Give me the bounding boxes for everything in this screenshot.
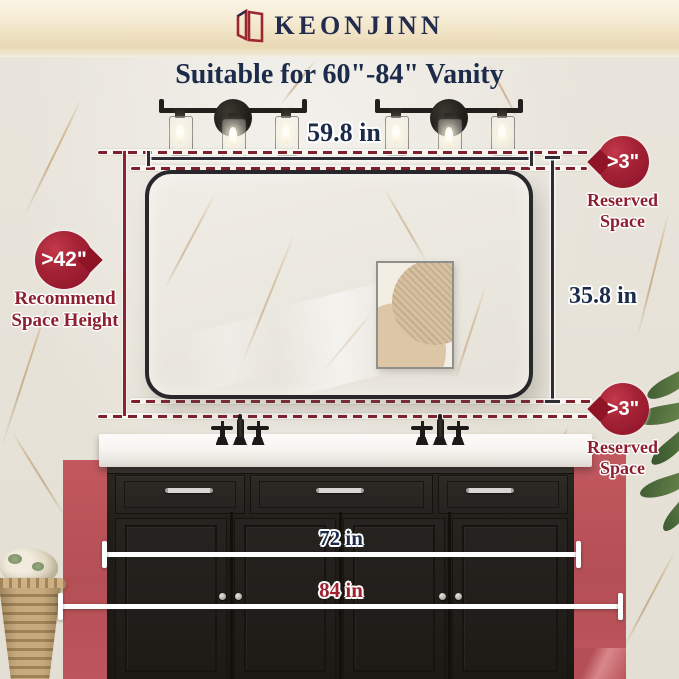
light-bulb (445, 127, 453, 147)
dashed-line-counter-top (96, 413, 593, 419)
faucet-spout-base (233, 437, 247, 445)
red-wall-fold (574, 648, 626, 679)
faucet-right (409, 414, 471, 445)
faucet-handle-stem (220, 430, 225, 438)
label-line: Recommend (0, 288, 130, 310)
faucet-handle-nub (457, 421, 461, 427)
faucet-handle-stem (256, 430, 261, 438)
dimension-tick (58, 593, 63, 620)
label-line: Space (570, 458, 675, 479)
marble-vein (12, 432, 67, 518)
marble-vein (622, 551, 675, 649)
door-knob (219, 593, 226, 600)
dimension-line-mirror-width (149, 157, 532, 160)
badge-value: >3" (607, 398, 639, 421)
dimension-tick (545, 156, 560, 159)
drawer-pull-handle (316, 488, 364, 493)
faucet-left (209, 414, 271, 445)
label-line: Space Height (0, 310, 130, 332)
faucet-handle-nub (221, 421, 225, 427)
reserved-space-bottom-label: Reserved Space (570, 437, 675, 479)
door-knob (235, 593, 242, 600)
dimension-tick (545, 400, 560, 403)
marble-vein (24, 98, 83, 216)
dimension-line-space-height (123, 151, 126, 416)
faucet-handle-base (416, 437, 429, 445)
dashed-line-lights-bottom (96, 149, 590, 155)
cabinet-stile (230, 512, 233, 679)
fixture-end-cap (518, 99, 523, 113)
faucet-handle-nub (421, 421, 425, 427)
light-bulb (176, 124, 184, 144)
fixture-end-cap (375, 99, 380, 113)
cabinet-stile (448, 512, 451, 679)
reserved-space-top-label: Reserved Space (570, 190, 675, 232)
door-knob (455, 593, 462, 600)
faucet-spout-base (433, 437, 447, 445)
faucet-spout (437, 419, 444, 439)
basket-leaf-print (8, 554, 22, 564)
badge-value: >3" (607, 151, 639, 174)
recommend-height-label: Recommend Space Height (0, 288, 130, 333)
drawer-pull-handle (165, 488, 213, 493)
dimension-tick (576, 541, 581, 568)
reserved-space-top-badge: >3" (597, 136, 649, 188)
vanity-cabinet (107, 466, 574, 679)
marble-vein (383, 187, 427, 262)
mirror-height-label: 35.8 in (553, 283, 653, 310)
faucet-handle-stem (456, 430, 461, 438)
vanity-drawer (250, 475, 433, 514)
dimension-line-72in (104, 552, 581, 557)
fixture-end-cap (159, 99, 164, 113)
brand-logo-icon (235, 9, 265, 43)
drawer-pull-handle (466, 488, 514, 493)
vanity-min-width-label: 72 in (271, 526, 411, 551)
vanity-drawer (438, 475, 568, 514)
faucet-handle-base (452, 437, 465, 445)
badge-value: >42" (41, 248, 87, 272)
label-line: Reserved (570, 437, 675, 458)
recommend-height-badge: >42" (35, 231, 93, 289)
mirror-width-label: 59.8 in (264, 118, 424, 148)
basket-leaf-print (32, 562, 44, 571)
dimension-tick (618, 593, 623, 620)
dimension-tick (147, 151, 150, 166)
reserved-space-bottom-badge: >3" (597, 383, 649, 435)
dimension-line-84in (60, 604, 623, 609)
faucet-handle-stem (420, 430, 425, 438)
faucet-handle-nub (257, 421, 261, 427)
dimension-tick (530, 151, 533, 166)
basket-shading (0, 588, 62, 679)
leaf (644, 368, 679, 404)
reflected-artwork (376, 261, 454, 369)
door-knob (439, 593, 446, 600)
dimension-tick (102, 541, 107, 568)
marble-vein (163, 192, 216, 290)
vanity-max-width-label: 84 in (271, 578, 411, 603)
cabinet-top-rail (107, 466, 574, 474)
vanity-drawer (115, 475, 245, 514)
faucet-handle-base (216, 437, 229, 445)
brand-logo: KEONJINN (0, 9, 679, 43)
vanity-countertop (99, 434, 592, 467)
label-line: Reserved (570, 190, 675, 211)
faucet-handle-base (252, 437, 265, 445)
cabinet-door (115, 518, 227, 679)
light-bulb (229, 127, 237, 147)
page-title: Suitable for 60"-84" Vanity (0, 59, 679, 91)
light-bulb (498, 124, 506, 144)
label-line: Space (570, 211, 675, 232)
red-wall-panel-right (574, 449, 626, 679)
leaf (659, 495, 679, 535)
cabinet-door (452, 518, 568, 679)
fixture-end-cap (302, 99, 307, 113)
dimension-line-mirror-height (551, 158, 554, 402)
brand-name: KEONJINN (274, 11, 443, 41)
wall-mirror (145, 170, 533, 399)
product-infographic: KEONJINN Suitable for 60"-84" Vanity (0, 0, 679, 679)
faucet-spout (237, 419, 244, 439)
